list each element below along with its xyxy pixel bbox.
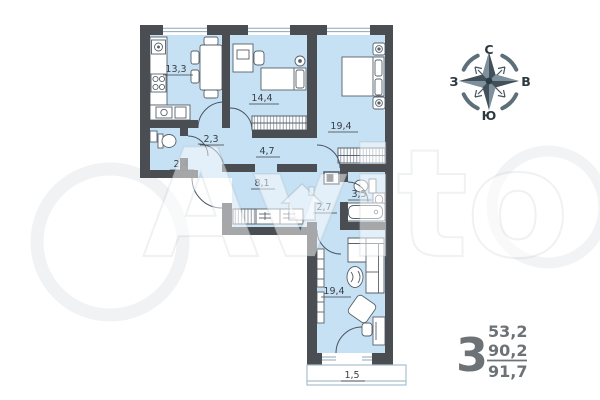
stove-icon [151, 74, 166, 92]
desk-chair-icon [362, 323, 372, 336]
label-balcony: 1,5 [344, 370, 359, 381]
compass-west-label: З [450, 74, 459, 89]
window-bedroom-2 [327, 25, 370, 35]
chair-icon [191, 51, 199, 64]
window-bedroom-1 [248, 25, 290, 35]
label-kitchen: 13,3 [165, 64, 186, 75]
pillow-icon [375, 79, 382, 95]
pillow-icon [375, 60, 382, 76]
pillow-icon [296, 70, 304, 88]
area-value: 90,2 [488, 341, 527, 360]
rooms-count: 3 [456, 328, 488, 382]
compass-east-label: В [521, 74, 531, 89]
living-area-value: 53,2 [488, 322, 527, 341]
watermark: Avito [143, 118, 568, 292]
floor-plan-image: 13,3 14,4 19,4 2,4 2,3 4,7 8,1 2,7 3,5 1… [0, 0, 600, 400]
area-summary: 3 53,2 90,2 91,7 [456, 322, 527, 382]
compass-south-label: Ю [482, 108, 497, 123]
dining-table-icon [200, 45, 222, 90]
watermark-brand-text: Avito [143, 118, 568, 292]
label-bedroom-1: 14,4 [251, 93, 272, 104]
chair-icon [191, 70, 199, 83]
compass-north-label: С [484, 42, 493, 57]
chair-icon [204, 90, 218, 98]
desk-icon [233, 44, 253, 72]
desk-icon [373, 317, 385, 345]
wall [222, 35, 230, 128]
balcony-door-window [322, 353, 372, 365]
chair-icon [204, 37, 218, 45]
desk-chair-icon [254, 51, 264, 65]
total-area-value: 91,7 [488, 362, 527, 381]
window-kitchen [163, 25, 207, 35]
floor-plan-svg: 13,3 14,4 19,4 2,4 2,3 4,7 8,1 2,7 3,5 1… [0, 0, 600, 400]
